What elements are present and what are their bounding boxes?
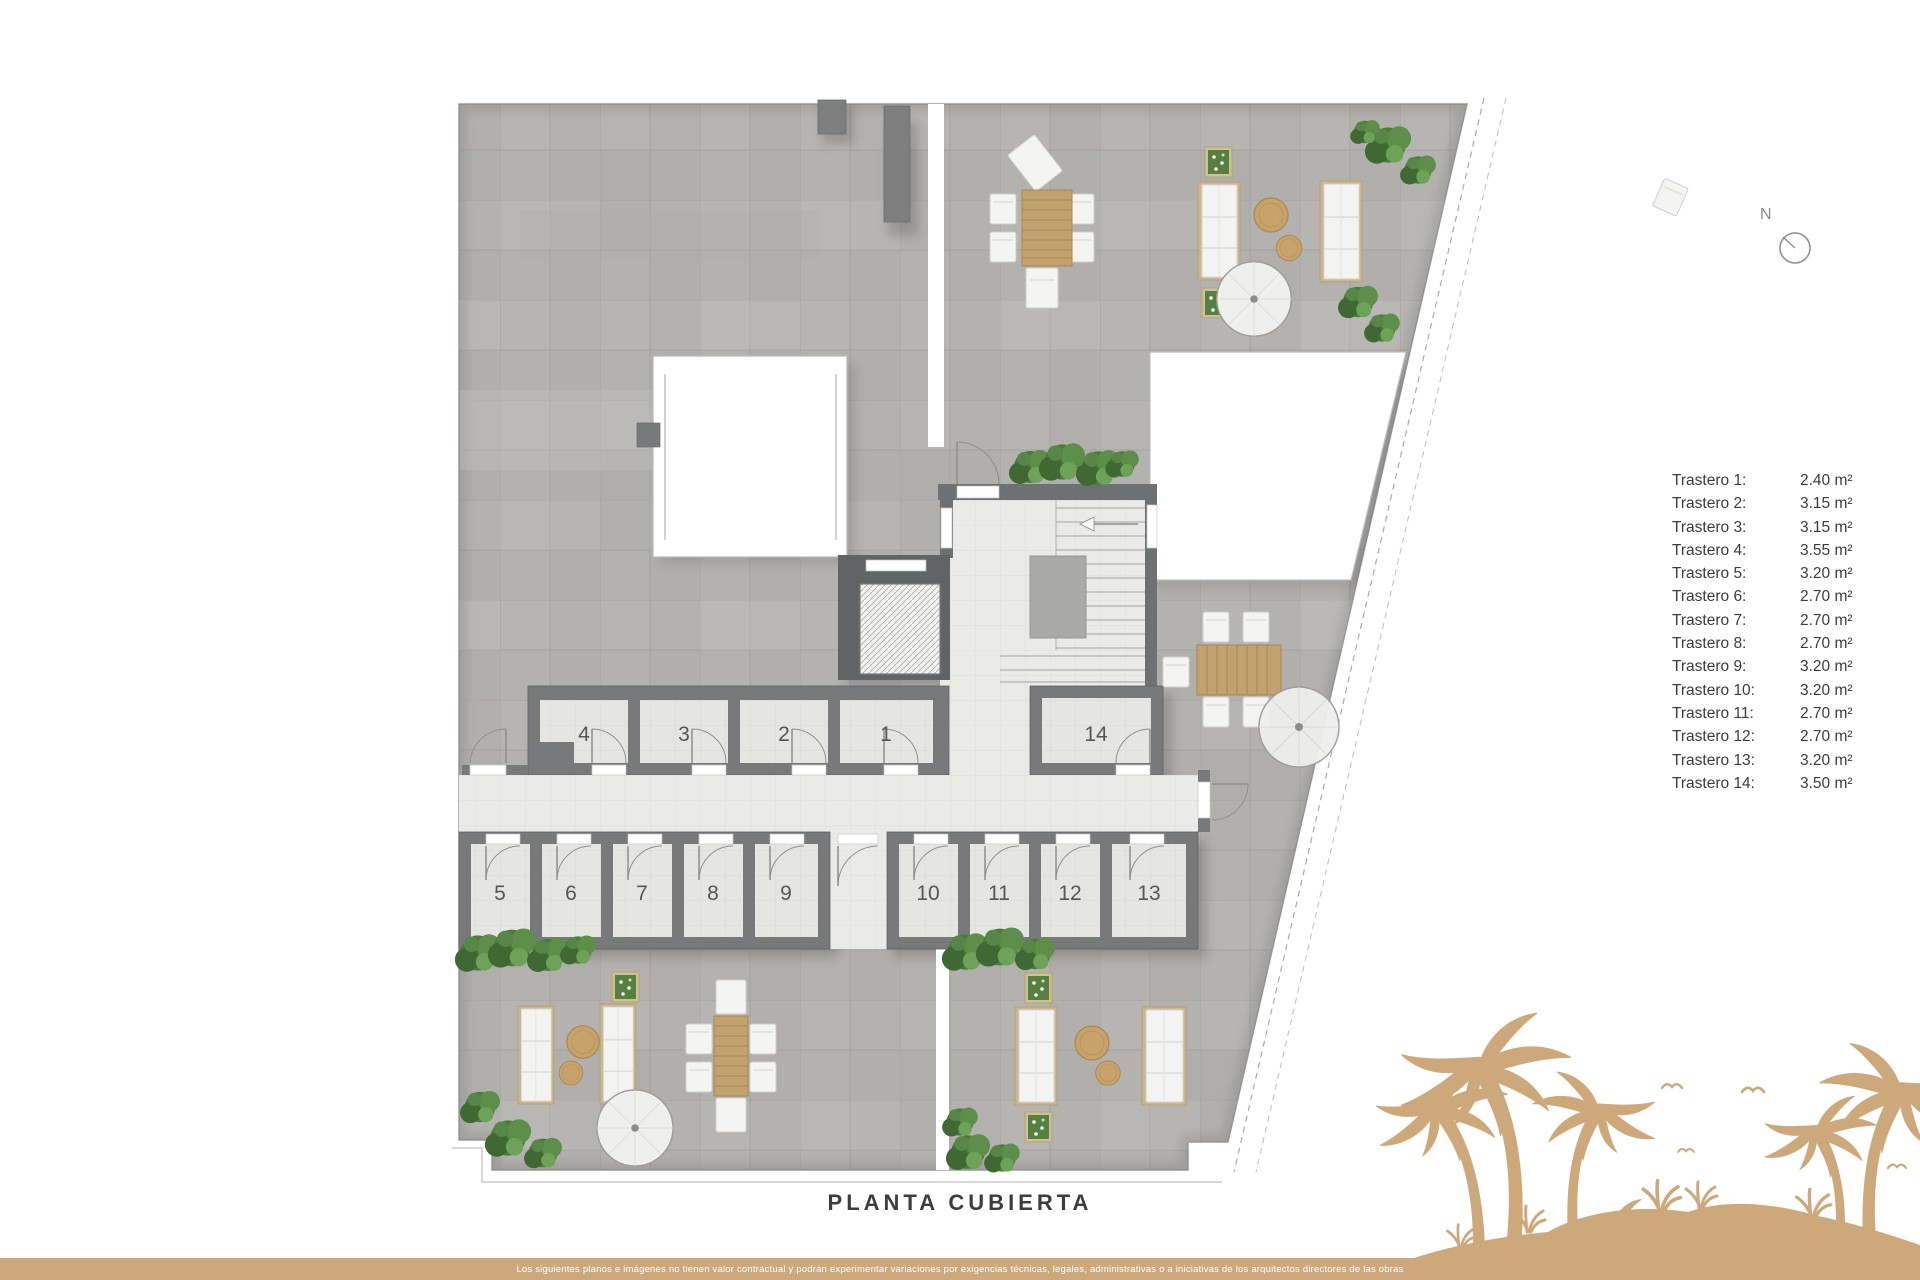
room-number-13: 13	[1137, 882, 1160, 905]
legend-row: Trastero 14: 3.50 m²	[1672, 772, 1920, 795]
elevator-door	[866, 560, 926, 571]
stair-landing	[1030, 556, 1086, 638]
room-number-5: 5	[494, 882, 506, 905]
legend-room-label: Trastero 3:	[1672, 516, 1800, 539]
legend-room-area: 3.20 m²	[1800, 679, 1920, 702]
legend-room-area: 2.70 m²	[1800, 725, 1920, 748]
umbrella-north	[1217, 262, 1291, 336]
legend-row: Trastero 6: 2.70 m²	[1672, 585, 1920, 608]
room-number-9: 9	[780, 882, 792, 905]
legend-room-area: 2.70 m²	[1800, 609, 1920, 632]
room-number-14: 14	[1084, 723, 1108, 746]
terrace-divider-north	[928, 104, 944, 447]
legend-row: Trastero 11: 2.70 m²	[1672, 702, 1920, 725]
legend-row: Trastero 8: 2.70 m²	[1672, 632, 1920, 655]
footer-disclaimer: Los siguientes planos e imágenes no tien…	[0, 1264, 1920, 1275]
room-number-12: 12	[1058, 882, 1081, 905]
umbrella-east	[1259, 687, 1339, 767]
legend-room-area: 2.70 m²	[1800, 632, 1920, 655]
legend-room-label: Trastero 10:	[1672, 679, 1800, 702]
legend-room-label: Trastero 4:	[1672, 539, 1800, 562]
legend-room-label: Trastero 11:	[1672, 702, 1800, 725]
legend-room-area: 3.20 m²	[1800, 749, 1920, 772]
page-title: PLANTA CUBIERTA	[0, 1190, 1920, 1216]
terrace-divider-south	[936, 940, 949, 1170]
legend-room-area: 3.50 m²	[1800, 772, 1920, 795]
legend-room-label: Trastero 14:	[1672, 772, 1800, 795]
compass-north-label: N	[1760, 206, 1772, 224]
room-number-7: 7	[636, 882, 648, 905]
legend-room-area: 2.70 m²	[1800, 702, 1920, 725]
storage-area-legend: Trastero 1: 2.40 m² Trastero 2: 3.15 m² …	[1672, 469, 1920, 795]
floorplan-drawing: 1 2 3 4 5 6 7 8 9 10 11 12 13 14	[0, 0, 1920, 1280]
skylight-void-left	[637, 356, 847, 557]
legend-room-label: Trastero 12:	[1672, 725, 1800, 748]
legend-room-label: Trastero 6:	[1672, 585, 1800, 608]
room-number-8: 8	[707, 882, 719, 905]
legend-row: Trastero 1: 2.40 m²	[1672, 469, 1920, 492]
legend-row: Trastero 9: 3.20 m²	[1672, 655, 1920, 678]
room-number-2: 2	[778, 723, 790, 746]
legend-row: Trastero 12: 2.70 m²	[1672, 725, 1920, 748]
legend-row: Trastero 7: 2.70 m²	[1672, 609, 1920, 632]
room-number-11: 11	[988, 882, 1010, 905]
legend-room-area: 3.15 m²	[1800, 516, 1920, 539]
skylight-void-right	[1150, 352, 1406, 580]
legend-room-label: Trastero 1:	[1672, 469, 1800, 492]
legend-room-label: Trastero 13:	[1672, 749, 1800, 772]
legend-room-area: 3.15 m²	[1800, 492, 1920, 515]
legend-row: Trastero 2: 3.15 m²	[1672, 492, 1920, 515]
legend-room-area: 2.40 m²	[1800, 469, 1920, 492]
legend-row: Trastero 13: 3.20 m²	[1672, 749, 1920, 772]
legend-room-label: Trastero 9:	[1672, 655, 1800, 678]
legend-row: Trastero 4: 3.55 m²	[1672, 539, 1920, 562]
legend-room-label: Trastero 2:	[1672, 492, 1800, 515]
floorplan-sheet: 1 2 3 4 5 6 7 8 9 10 11 12 13 14	[0, 0, 1920, 1280]
legend-room-area: 3.55 m²	[1800, 539, 1920, 562]
room-number-3: 3	[678, 723, 690, 746]
legend-room-label: Trastero 8:	[1672, 632, 1800, 655]
room-number-10: 10	[916, 882, 939, 905]
room-number-6: 6	[565, 882, 577, 905]
legend-row: Trastero 3: 3.15 m²	[1672, 516, 1920, 539]
storage-corridor	[459, 775, 1206, 832]
legend-room-label: Trastero 7:	[1672, 609, 1800, 632]
legend-room-area: 3.20 m²	[1800, 562, 1920, 585]
elevator	[838, 555, 950, 680]
storage-rooms: 1 2 3 4 5 6 7 8 9 10 11 12 13 14	[459, 686, 1248, 949]
room-number-4: 4	[578, 723, 590, 746]
legend-row: Trastero 5: 3.20 m²	[1672, 562, 1920, 585]
legend-room-area: 3.20 m²	[1800, 655, 1920, 678]
legend-room-area: 2.70 m²	[1800, 585, 1920, 608]
elevator-cab	[860, 584, 940, 674]
compass-icon	[1780, 233, 1810, 263]
legend-row: Trastero 10: 3.20 m²	[1672, 679, 1920, 702]
umbrella-southwest	[597, 1090, 673, 1166]
legend-room-label: Trastero 5:	[1672, 562, 1800, 585]
palm-island-illustration	[1370, 1003, 1920, 1280]
room-number-1: 1	[880, 723, 892, 746]
